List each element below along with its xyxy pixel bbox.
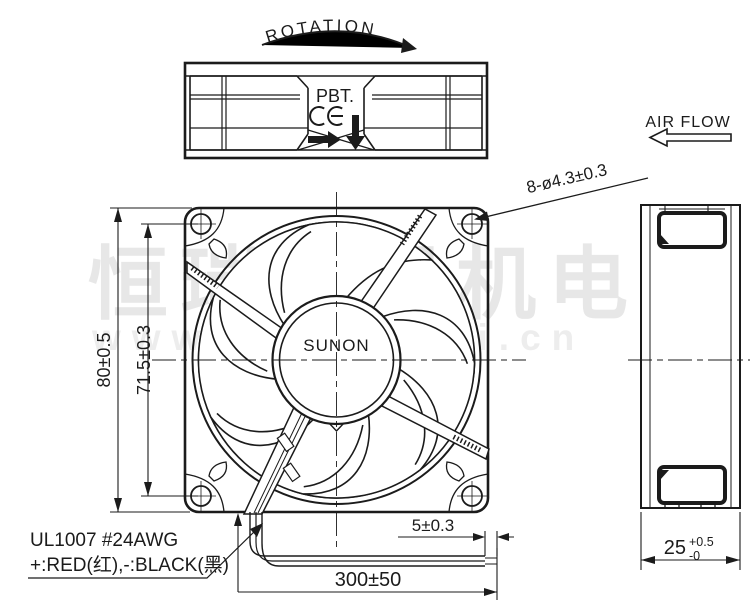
fan-technical-drawing: 恒瑞宏晟机电 www.bjhengrui.cn ROTATION [0, 0, 750, 606]
lead-wires [250, 512, 497, 566]
side-view-bottom-blade [659, 467, 725, 508]
side-view-top-blade [659, 205, 725, 247]
frame-width-label: 80±0.5 [94, 333, 114, 388]
wire-spec-note: UL1007 #24AWG +:RED(红),-:BLACK(黑) [28, 523, 263, 578]
dim-frame-depth: 25 +0.5 -0 [641, 512, 740, 570]
wire-spec-line2: +:RED(红),-:BLACK(黑) [30, 554, 229, 576]
frame-depth-tol-minus: -0 [689, 549, 700, 563]
side-view-frame [641, 205, 740, 508]
side-view [628, 205, 750, 508]
wire-strip-label: 5±0.3 [412, 516, 454, 535]
drawing-canvas: ROTATION PBT. [0, 0, 750, 606]
hole-pitch-label: 71.5±0.3 [134, 325, 154, 395]
rotation-arrowhead-icon [401, 38, 417, 53]
rotation-label-group: ROTATION [262, 16, 417, 53]
frame-depth-label: 25 [664, 537, 686, 559]
air-flow-arrow-icon [650, 129, 731, 146]
top-view-frame [185, 63, 487, 158]
airflow-direction-arrow-icon [346, 115, 365, 150]
air-flow-group: AIR FLOW [645, 114, 731, 146]
front-view: SUNON [152, 180, 526, 550]
top-view: PBT. [185, 63, 487, 158]
material-label: PBT. [316, 86, 354, 106]
wire-length-label: 300±50 [335, 569, 402, 591]
hole-callout-label: 8-ø4.3±0.3 [525, 160, 609, 197]
ce-mark-icon [310, 107, 343, 125]
wire-stripped-ends [485, 558, 497, 564]
hole-callout: 8-ø4.3±0.3 [474, 160, 648, 221]
wire-spec-line1: UL1007 #24AWG [30, 530, 178, 551]
air-flow-label: AIR FLOW [645, 114, 730, 131]
frame-depth-tol-plus: +0.5 [689, 535, 714, 549]
